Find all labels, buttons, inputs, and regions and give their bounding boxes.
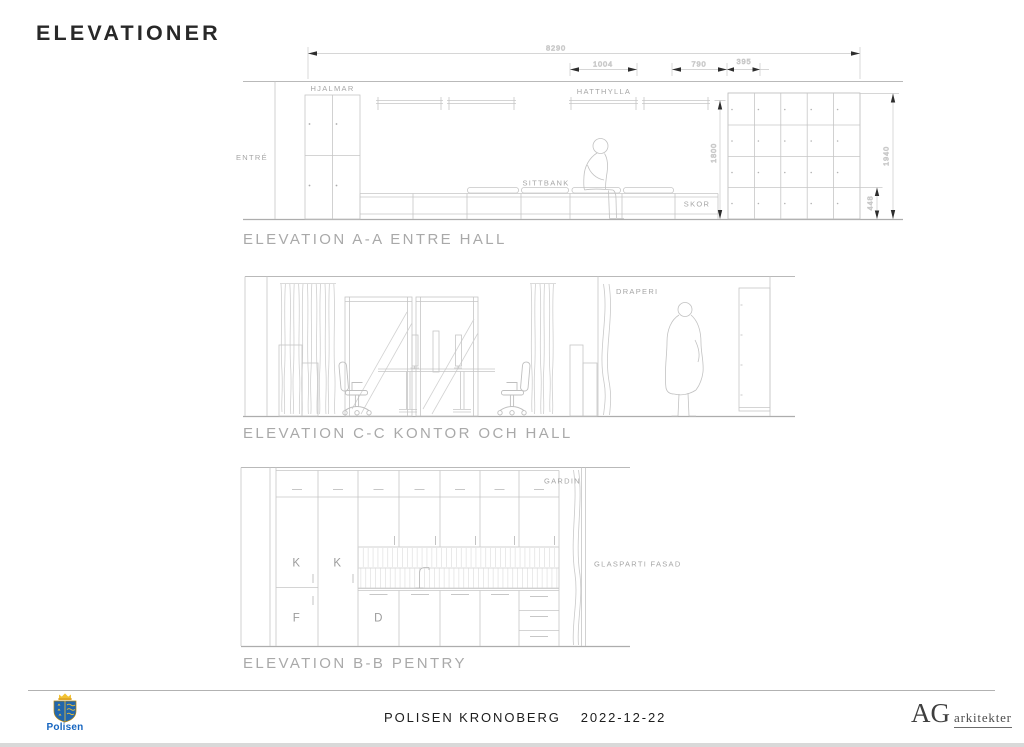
elevation-b-drawing: K K F D GARDIN GLASPARTI FASAD	[225, 456, 705, 656]
footer-project-info: POLISEN KRONOBERG 2022-12-22	[384, 710, 666, 725]
architect-initials: AG	[911, 698, 950, 729]
backsplash-tiles	[358, 547, 559, 588]
glass-facade-lines	[582, 468, 586, 647]
label-dishwasher: D	[374, 613, 383, 625]
sitting-bench	[360, 188, 718, 220]
locker-grid	[728, 93, 860, 219]
seated-person-figure	[584, 139, 624, 219]
polisen-logo-icon	[46, 692, 84, 723]
label-gardin: GARDIN	[544, 477, 581, 486]
footer-divider	[28, 690, 995, 691]
dim-448: 448	[866, 196, 875, 211]
dim-1800: 1800	[709, 143, 718, 163]
left-wall-lines	[241, 468, 276, 647]
left-wall-lines	[245, 277, 267, 417]
standing-person-figure	[665, 303, 703, 417]
helmet-cabinet	[305, 95, 360, 219]
dim-395: 395	[737, 57, 752, 66]
elevation-a-title: ELEVATION A-A ENTRE HALL	[243, 231, 507, 248]
label-sittbank: SITTBANK	[522, 179, 569, 188]
dim-1004: 1004	[593, 60, 613, 69]
dim-790: 790	[692, 60, 707, 69]
cabinet-knobs	[309, 123, 338, 186]
footer-date: 2022-12-22	[581, 710, 667, 725]
office-chair-right	[498, 362, 530, 415]
elevation-a-structure	[243, 82, 903, 220]
tall-cabinet-right	[739, 277, 770, 417]
architect-name: arkitekter	[954, 710, 1012, 728]
label-skor: SKOR	[684, 200, 710, 209]
architect-logo: AG arkitekter	[911, 698, 1012, 729]
elevation-b-title: ELEVATION B-B PENTRY	[243, 655, 467, 672]
label-hatthylla: HATTHYLLA	[577, 87, 632, 96]
elevation-c-drawing: DRAPERI	[225, 256, 825, 451]
dim-1940: 1940	[882, 146, 891, 166]
faucet	[416, 568, 430, 589]
footer-client: POLISEN KRONOBERG	[384, 710, 561, 725]
label-draperi: DRAPERI	[616, 287, 658, 296]
desks	[378, 331, 495, 412]
elevation-c-title: ELEVATION C-C KONTOR OCH HALL	[243, 425, 573, 442]
elevation-c-structure	[243, 277, 795, 417]
polisen-logo-text: Polisen	[42, 722, 88, 733]
monitors	[411, 331, 463, 372]
bench-cushions	[468, 188, 674, 194]
elevation-a-drawing: 8290 1004 790 395 1800 1940 448 ENTRÉ HJ…	[225, 38, 925, 258]
label-fridge-1: K	[292, 558, 300, 570]
label-fridge-2: K	[333, 558, 341, 570]
label-hjalmar: HJALMAR	[310, 84, 354, 93]
draperi-curtain	[602, 284, 611, 415]
low-cabinet-middle	[570, 345, 597, 416]
curtain-middle	[530, 284, 556, 415]
label-entre: ENTRÉ	[236, 153, 268, 162]
gardin-curtain	[573, 470, 581, 645]
office-chair-left	[339, 362, 371, 415]
page-bottom-edge	[0, 743, 1024, 747]
police-crest	[54, 693, 76, 722]
counter-and-base	[358, 589, 559, 647]
glass-partition-2	[416, 297, 478, 416]
dim-8290: 8290	[546, 44, 566, 53]
page-title: ELEVATIONER	[36, 21, 221, 46]
curtain-left	[280, 284, 336, 415]
hat-shelves	[376, 97, 710, 110]
label-glasparti-fasad: GLASPARTI FASAD	[594, 560, 682, 569]
label-freezer: F	[293, 613, 301, 625]
